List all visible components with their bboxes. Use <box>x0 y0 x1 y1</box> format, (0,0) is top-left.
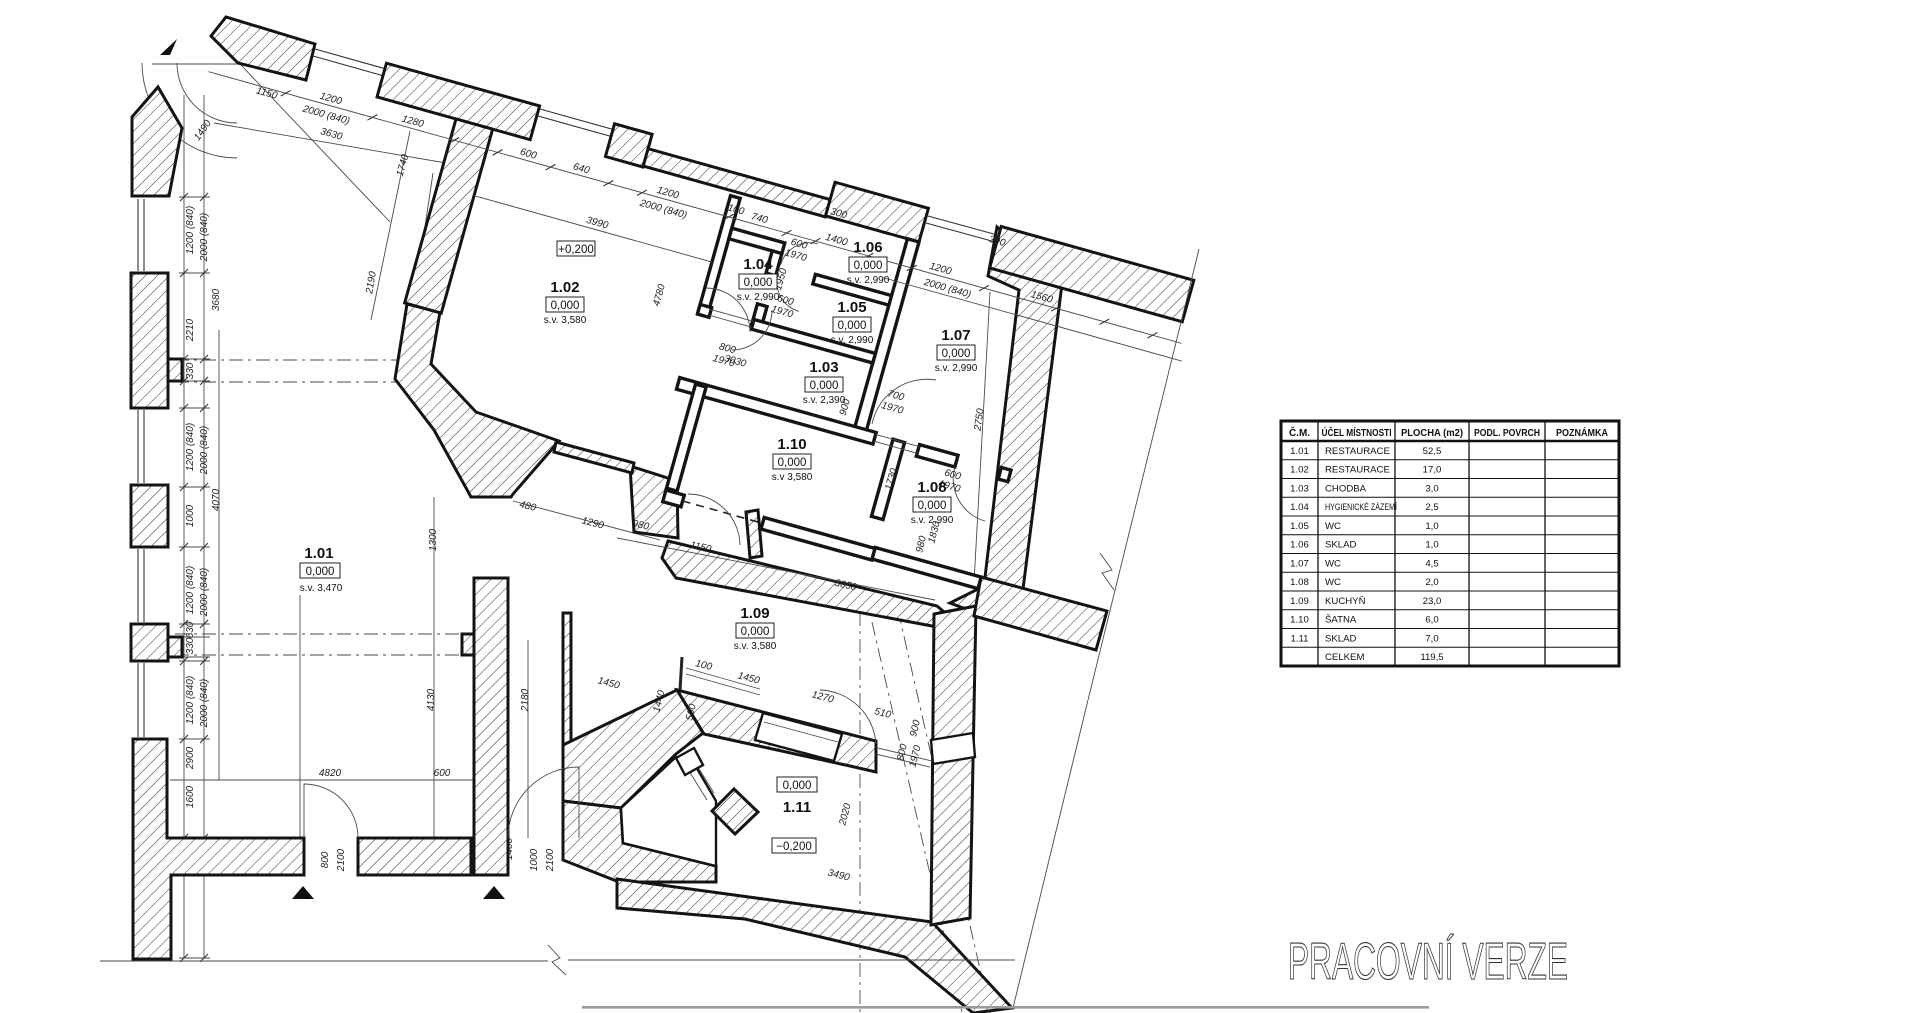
svg-text:330: 330 <box>185 362 196 379</box>
svg-text:2000 (840): 2000 (840) <box>199 679 210 728</box>
svg-text:1600: 1600 <box>185 785 196 808</box>
svg-text:s.v. 2,990: s.v. 2,990 <box>737 292 780 303</box>
svg-text:52,5: 52,5 <box>1423 446 1442 457</box>
svg-text:1.06: 1.06 <box>1290 540 1309 551</box>
svg-text:s.v. 2,990: s.v. 2,990 <box>847 275 890 286</box>
svg-text:119,5: 119,5 <box>1420 652 1443 663</box>
svg-text:PODL. POVRCH: PODL. POVRCH <box>1474 428 1540 439</box>
svg-text:1.08: 1.08 <box>1290 577 1309 588</box>
svg-text:RESTAURACE: RESTAURACE <box>1325 465 1390 476</box>
svg-text:1,0: 1,0 <box>1425 540 1438 551</box>
svg-text:2900: 2900 <box>185 746 196 770</box>
svg-text:0,000: 0,000 <box>778 457 807 469</box>
svg-text:s.v 3,580: s.v 3,580 <box>772 472 813 483</box>
svg-text:Č.M.: Č.M. <box>1289 426 1310 439</box>
svg-text:2180: 2180 <box>520 688 531 712</box>
svg-text:1200 (840): 1200 (840) <box>185 566 196 614</box>
svg-text:ŠATNA: ŠATNA <box>1325 615 1357 626</box>
svg-text:HYGIENICKÉ ZÁZEMÍ: HYGIENICKÉ ZÁZEMÍ <box>1325 502 1397 513</box>
svg-text:630: 630 <box>185 621 196 638</box>
svg-text:3,0: 3,0 <box>1425 483 1438 494</box>
svg-text:4070: 4070 <box>211 488 222 511</box>
svg-text:6,0: 6,0 <box>1425 615 1438 626</box>
svg-text:800: 800 <box>320 851 331 868</box>
svg-text:2100: 2100 <box>336 848 347 872</box>
svg-text:17,0: 17,0 <box>1423 465 1442 476</box>
svg-text:1.02: 1.02 <box>550 279 579 296</box>
svg-text:WC: WC <box>1325 577 1341 588</box>
svg-text:3680: 3680 <box>211 288 222 311</box>
svg-text:2000 (840): 2000 (840) <box>199 213 210 262</box>
svg-text:1.04: 1.04 <box>743 256 773 273</box>
svg-text:2,0: 2,0 <box>1425 577 1438 588</box>
svg-text:1.08: 1.08 <box>917 479 946 496</box>
svg-text:WC: WC <box>1325 558 1341 569</box>
svg-text:+0,200: +0,200 <box>558 244 594 256</box>
svg-text:0,000: 0,000 <box>838 320 867 332</box>
svg-text:0,000: 0,000 <box>306 566 335 578</box>
svg-text:2210: 2210 <box>185 318 196 342</box>
svg-text:1.10: 1.10 <box>777 436 806 453</box>
svg-text:POZNÁMKA: POZNÁMKA <box>1556 426 1608 439</box>
svg-text:1.07: 1.07 <box>941 327 970 344</box>
svg-text:1000: 1000 <box>185 504 196 527</box>
svg-text:600: 600 <box>434 768 451 779</box>
svg-text:1.05: 1.05 <box>1290 521 1309 532</box>
svg-text:1.06: 1.06 <box>853 239 882 256</box>
svg-text:1.09: 1.09 <box>740 605 769 622</box>
svg-text:PLOCHA (m2): PLOCHA (m2) <box>1401 428 1463 439</box>
svg-text:0,000: 0,000 <box>918 500 947 512</box>
svg-text:1200 (840): 1200 (840) <box>185 423 196 471</box>
svg-text:4,5: 4,5 <box>1425 558 1438 569</box>
svg-text:WC: WC <box>1325 521 1341 532</box>
svg-text:1.11: 1.11 <box>783 799 811 816</box>
svg-text:4130: 4130 <box>426 688 437 711</box>
svg-text:0,000: 0,000 <box>741 626 770 638</box>
svg-text:s.v. 2,990: s.v. 2,990 <box>831 335 874 346</box>
svg-text:−0,200: −0,200 <box>776 841 812 853</box>
svg-text:s.v. 3,580: s.v. 3,580 <box>544 315 587 326</box>
svg-text:2100: 2100 <box>545 848 556 872</box>
svg-text:CHODBA: CHODBA <box>1325 483 1367 494</box>
svg-text:1200 (840): 1200 (840) <box>185 206 196 254</box>
svg-text:0,000: 0,000 <box>942 348 971 360</box>
svg-text:0,000: 0,000 <box>551 300 580 312</box>
svg-text:0,000: 0,000 <box>854 260 883 272</box>
svg-text:s.v. 2,990: s.v. 2,990 <box>935 363 978 374</box>
svg-text:1.07: 1.07 <box>1290 558 1309 569</box>
svg-text:1.09: 1.09 <box>1290 596 1309 607</box>
svg-text:7,0: 7,0 <box>1425 633 1438 644</box>
svg-text:23,0: 23,0 <box>1423 596 1442 607</box>
svg-text:2,5: 2,5 <box>1425 502 1438 513</box>
svg-text:1.01: 1.01 <box>304 545 333 562</box>
svg-text:4820: 4820 <box>319 768 342 779</box>
svg-text:PRACOVNÍ VERZE: PRACOVNÍ VERZE <box>1288 933 1568 991</box>
svg-text:1.03: 1.03 <box>809 359 838 376</box>
svg-text:1.04: 1.04 <box>1290 502 1309 513</box>
svg-text:s.v. 3,470: s.v. 3,470 <box>300 583 343 594</box>
svg-text:1.05: 1.05 <box>837 299 866 316</box>
svg-text:1,0: 1,0 <box>1425 521 1438 532</box>
svg-text:RESTAURACE: RESTAURACE <box>1325 446 1390 457</box>
svg-text:1.11: 1.11 <box>1291 633 1309 644</box>
svg-text:CELKEM: CELKEM <box>1325 652 1364 663</box>
svg-text:1000: 1000 <box>529 848 540 871</box>
svg-text:1.03: 1.03 <box>1290 483 1309 494</box>
svg-text:1.02: 1.02 <box>1290 465 1309 476</box>
svg-text:2000 (840): 2000 (840) <box>199 426 210 475</box>
svg-text:2000 (840): 2000 (840) <box>199 568 210 617</box>
svg-text:330: 330 <box>185 637 196 654</box>
svg-text:ÚČEL MÍSTNOSTI: ÚČEL MÍSTNOSTI <box>1322 426 1392 439</box>
svg-text:s.v. 2,390: s.v. 2,390 <box>803 395 846 406</box>
svg-text:1.01: 1.01 <box>1290 446 1309 457</box>
svg-text:0,000: 0,000 <box>744 277 773 289</box>
svg-text:1200 (840): 1200 (840) <box>185 676 196 724</box>
svg-text:1300: 1300 <box>428 528 439 551</box>
svg-text:KUCHYŇ: KUCHYŇ <box>1325 596 1366 607</box>
svg-text:1.10: 1.10 <box>1290 615 1309 626</box>
svg-text:SKLAD: SKLAD <box>1325 540 1357 551</box>
svg-text:0,000: 0,000 <box>783 780 812 792</box>
svg-text:0,000: 0,000 <box>810 380 839 392</box>
svg-text:s.v. 3,580: s.v. 3,580 <box>734 641 777 652</box>
svg-text:SKLAD: SKLAD <box>1325 633 1357 644</box>
